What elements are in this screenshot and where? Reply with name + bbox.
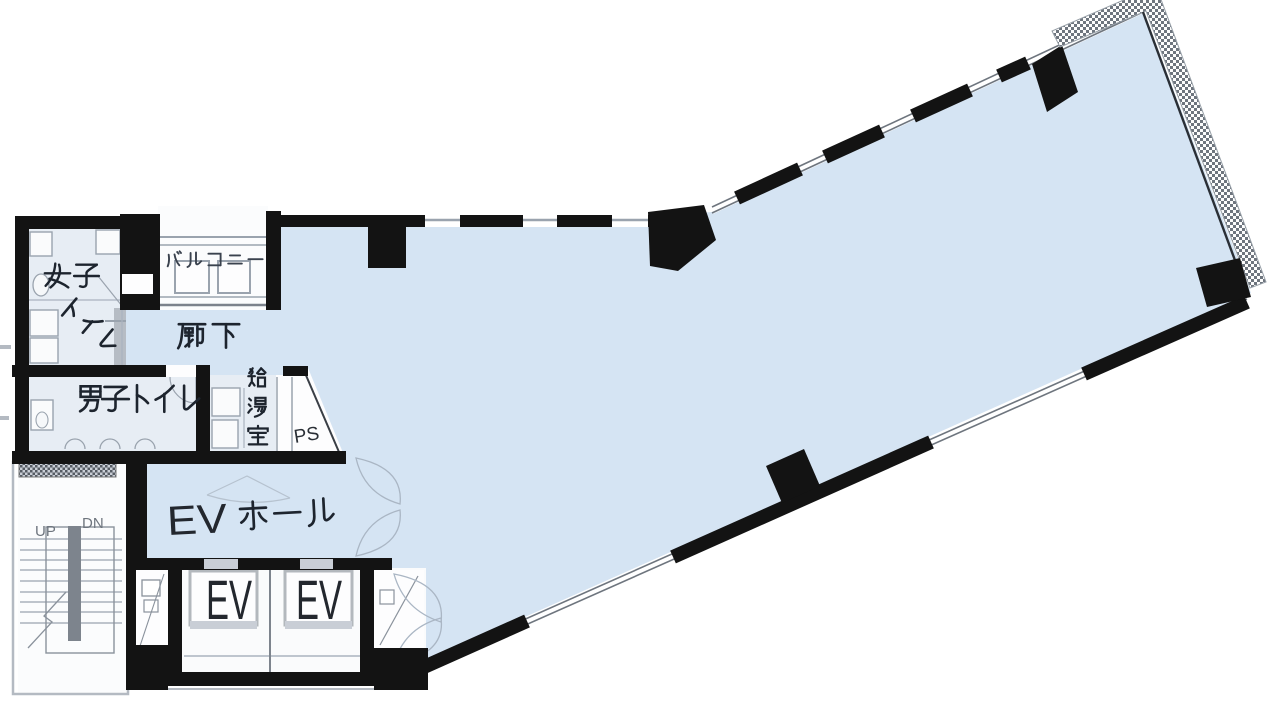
svg-text:PS: PS [292,423,320,448]
svg-text:EV: EV [206,568,252,631]
svg-text:EV: EV [166,495,229,544]
svg-text:UP: UP [35,523,56,540]
svg-text:EV: EV [296,568,342,631]
svg-text:DN: DN [82,515,104,532]
